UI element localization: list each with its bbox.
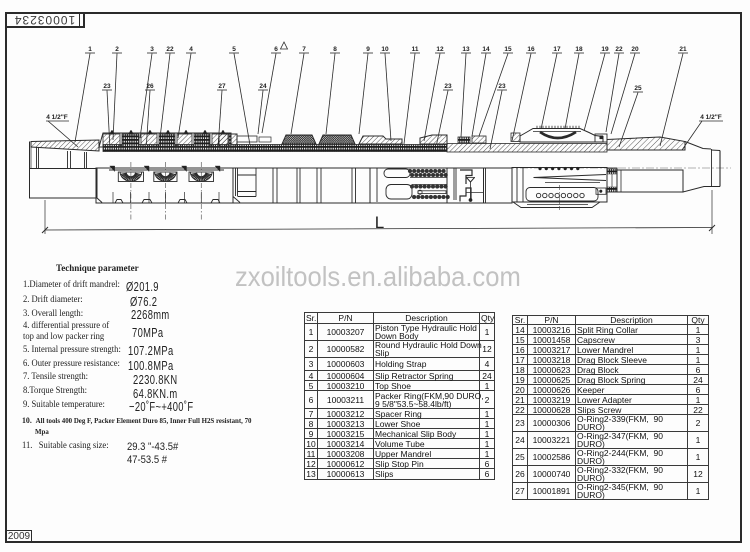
svg-text:5: 5 bbox=[232, 46, 236, 53]
svg-text:9: 9 bbox=[366, 46, 370, 53]
svg-text:2: 2 bbox=[115, 46, 119, 53]
svg-text:22: 22 bbox=[615, 46, 623, 53]
svg-text:23: 23 bbox=[444, 83, 452, 90]
svg-text:22: 22 bbox=[166, 46, 174, 53]
svg-text:4 1/2"F: 4 1/2"F bbox=[46, 114, 68, 121]
svg-text:4 1/2"F: 4 1/2"F bbox=[700, 114, 722, 121]
svg-text:23: 23 bbox=[103, 83, 111, 90]
svg-text:6: 6 bbox=[274, 46, 278, 53]
svg-text:14: 14 bbox=[482, 46, 490, 53]
svg-text:10: 10 bbox=[381, 46, 389, 53]
svg-text:12: 12 bbox=[436, 46, 444, 53]
svg-text:24: 24 bbox=[259, 83, 267, 90]
svg-text:17: 17 bbox=[553, 46, 561, 53]
svg-text:8: 8 bbox=[333, 46, 337, 53]
svg-text:27: 27 bbox=[218, 83, 226, 90]
svg-text:25: 25 bbox=[634, 85, 642, 92]
svg-text:L: L bbox=[375, 213, 384, 232]
svg-text:19: 19 bbox=[601, 46, 609, 53]
svg-text:4: 4 bbox=[189, 46, 193, 53]
svg-text:7: 7 bbox=[302, 46, 306, 53]
svg-text:23: 23 bbox=[498, 83, 506, 90]
svg-text:11: 11 bbox=[412, 46, 419, 53]
svg-text:20: 20 bbox=[631, 46, 639, 53]
svg-text:26: 26 bbox=[146, 83, 154, 90]
svg-text:1: 1 bbox=[88, 46, 92, 53]
svg-text:18: 18 bbox=[575, 46, 583, 53]
svg-text:21: 21 bbox=[679, 46, 687, 53]
svg-text:15: 15 bbox=[504, 46, 512, 53]
svg-text:16: 16 bbox=[527, 46, 535, 53]
svg-text:13: 13 bbox=[462, 46, 470, 53]
svg-text:3: 3 bbox=[150, 46, 154, 53]
